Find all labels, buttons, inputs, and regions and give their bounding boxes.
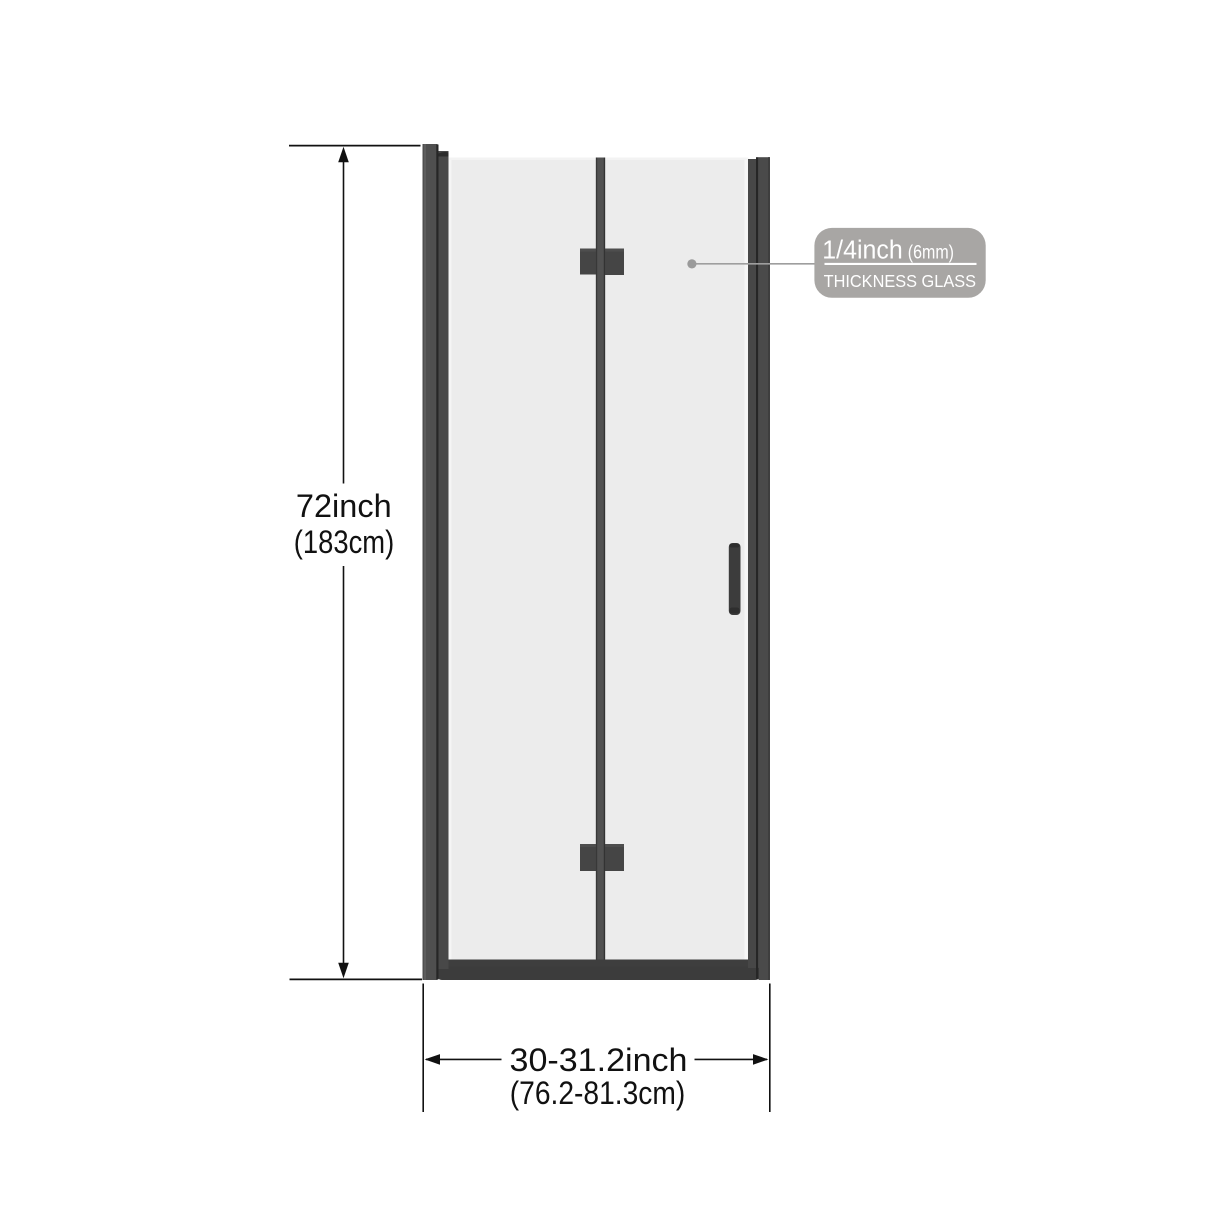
svg-text:30-31.2inch: 30-31.2inch	[510, 1042, 688, 1078]
svg-text:72inch: 72inch	[296, 488, 392, 524]
svg-text:1/4inch: 1/4inch	[822, 236, 902, 264]
svg-text:(183cm): (183cm)	[294, 524, 394, 560]
svg-text:THICKNESS GLASS: THICKNESS GLASS	[824, 271, 976, 291]
svg-text:(6mm): (6mm)	[908, 242, 954, 263]
svg-text:(76.2-81.3cm): (76.2-81.3cm)	[510, 1075, 686, 1111]
